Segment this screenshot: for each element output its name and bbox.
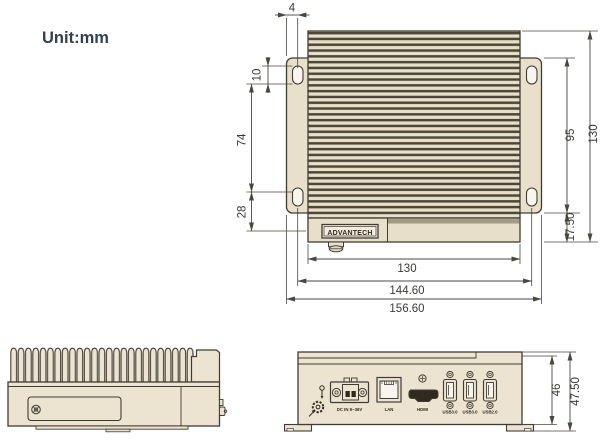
hdmi-port-label: HDMI bbox=[417, 407, 428, 412]
bracket-slot-bottom-right bbox=[527, 188, 538, 206]
heatsink-fins-top bbox=[308, 31, 520, 218]
dim-slot-offset-label: 4 bbox=[289, 3, 296, 15]
side-connector-bumps bbox=[220, 400, 227, 416]
grounding-screw-top bbox=[329, 242, 344, 252]
panel-screw-icon bbox=[32, 405, 41, 414]
bracket-slot-top-left bbox=[293, 66, 304, 84]
top-view: ADVANTECH 4 10 bbox=[237, 3, 601, 316]
dim-mount-width-label: 144.60 bbox=[389, 285, 424, 297]
dim-body-width-label: 130 bbox=[397, 263, 416, 275]
dim-overall-width-label: 156.60 bbox=[389, 303, 424, 315]
dim-slot-length-label: 10 bbox=[252, 69, 264, 82]
side-view bbox=[8, 347, 227, 432]
front-foot-right bbox=[507, 425, 534, 432]
front-bezel: ADVANTECH bbox=[308, 218, 520, 252]
dimension-bracket-height: 95 bbox=[544, 58, 580, 213]
bracket-slot-bottom-left bbox=[293, 188, 304, 206]
usb-port-3-label: USB2.0 bbox=[482, 410, 498, 415]
advantech-logo-text: ADVANTECH bbox=[327, 230, 372, 237]
dim-bracket-height-label: 95 bbox=[565, 129, 577, 142]
side-access-panel bbox=[28, 397, 121, 421]
front-view: DC IN 9~36V LAN HDMI bbox=[285, 352, 583, 431]
side-foot bbox=[106, 429, 130, 432]
advantech-logo: ADVANTECH bbox=[322, 225, 378, 239]
dim-body-height-label: 46 bbox=[551, 384, 563, 397]
dim-slot-to-front-label: 28 bbox=[237, 206, 249, 219]
unit-label: Unit:mm bbox=[42, 29, 109, 47]
dim-overall-height-label: 47.50 bbox=[570, 377, 582, 406]
dim-depth-label: 130 bbox=[588, 124, 600, 143]
dimension-slot-spacing: 74 bbox=[237, 84, 293, 192]
dimension-front-offset: 17.50 bbox=[565, 213, 577, 242]
front-foot-left bbox=[285, 425, 312, 432]
side-bottom-plate bbox=[36, 426, 188, 429]
drawing-canvas: Unit:mm ADVANTECH bbox=[0, 0, 602, 444]
heatsink-fins-side bbox=[10, 347, 194, 382]
dimension-body-height: 46 bbox=[522, 356, 563, 425]
usb-port-1-label: USB3.0 bbox=[442, 410, 458, 415]
bracket-slot-top-right bbox=[527, 66, 538, 84]
dimension-slot-length: 10 bbox=[247, 57, 293, 93]
dim-slot-spacing-label: 74 bbox=[237, 133, 249, 146]
dimension-drawing: Unit:mm ADVANTECH bbox=[0, 0, 602, 444]
power-terminal-label: DC IN 9~36V bbox=[337, 407, 363, 412]
usb-port-2-label: USB3.0 bbox=[462, 410, 478, 415]
dim-front-offset-label: 17.50 bbox=[565, 213, 577, 242]
lan-port-label: LAN bbox=[385, 407, 394, 412]
side-front-block bbox=[192, 350, 220, 382]
